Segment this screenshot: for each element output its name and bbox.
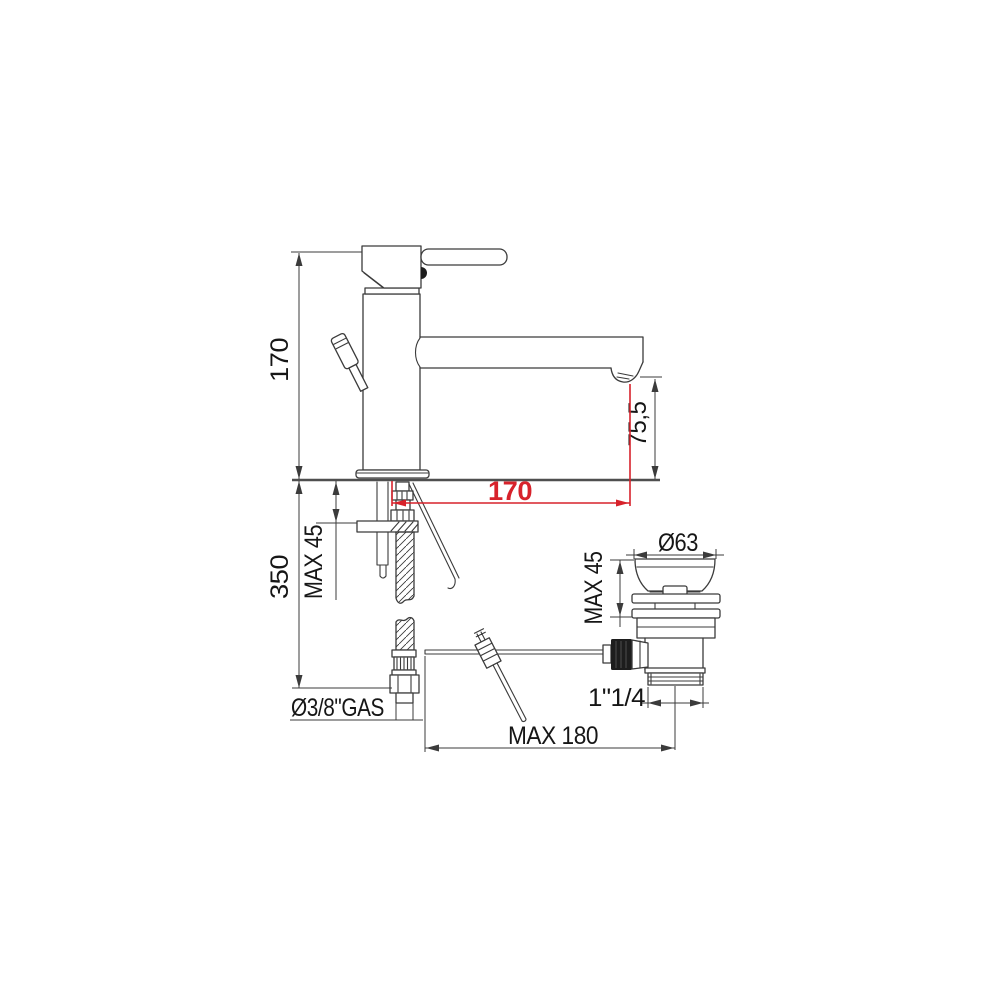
dim-label-350: 350 [266,555,294,599]
dim-label-max45-drain: MAX 45 [580,552,608,625]
faucet-mixer-figure [330,246,644,478]
supply-pipe-upper [396,532,414,603]
rod-clamp-sleeve [475,638,501,668]
under-deck-assembly [357,482,459,703]
pop-up-waste-figure [425,559,720,722]
dim-max-deck-thickness-faucet: MAX 45 [300,481,357,600]
dim-label-max45-faucet: MAX 45 [300,525,328,599]
dim-label-170-reach: 170 [488,476,532,506]
rod-joint-collar [603,645,611,663]
waste-body-upper [637,618,715,638]
supply-collar [392,650,416,657]
technical-drawing-svg: 170 350 MAX 45 75,5 Ø3/8"GAS [0,0,1000,1000]
faucet-lever-handle [421,249,507,265]
waste-thread [648,673,703,685]
faucet-cap [362,246,421,288]
aerator-detail-lines [617,373,633,379]
faucet-body [363,294,420,470]
waste-thread-lip [645,668,705,673]
dim-label-1-1-4: 1"1/4 [588,684,646,712]
waste-body-lower [645,638,703,670]
horizontal-pull-rod [425,650,609,654]
faucet-collar [365,288,419,294]
waste-neck-lines [655,603,695,609]
dim-spout-reach: 170 [392,384,630,507]
diagram-canvas: 170 350 MAX 45 75,5 Ø3/8"GAS [0,0,1000,1000]
spout-fill [419,338,644,367]
tailpiece-fitting-1 [396,482,409,491]
dim-waste-thread: 1"1/4 [588,684,709,712]
dim-flange-diameter: Ø63 [626,529,724,559]
supply-ring [392,670,416,675]
dim-label-max180: MAX 180 [508,722,598,750]
dim-below-deck-depth: 350 [266,481,392,688]
dim-label-75-5: 75,5 [624,402,652,447]
waste-washer-upper [632,594,720,603]
dim-label-3-8-gas: Ø3/8"GAS [291,694,384,722]
temperature-indicator-dot [421,267,427,279]
dim-max-deck-thickness-drain: MAX 45 [580,552,634,628]
supply-hex-nut [390,675,419,693]
pop-up-rod-upper [409,483,459,589]
dim-label-o63: Ø63 [658,529,698,557]
waste-washer-lower [632,609,720,618]
supply-pipe-lower [396,618,414,650]
faucet-base-flange [356,470,429,478]
dim-label-170-vertical: 170 [266,338,294,382]
rod-joint-knurled-nut [611,639,632,670]
supply-stub [396,693,413,703]
